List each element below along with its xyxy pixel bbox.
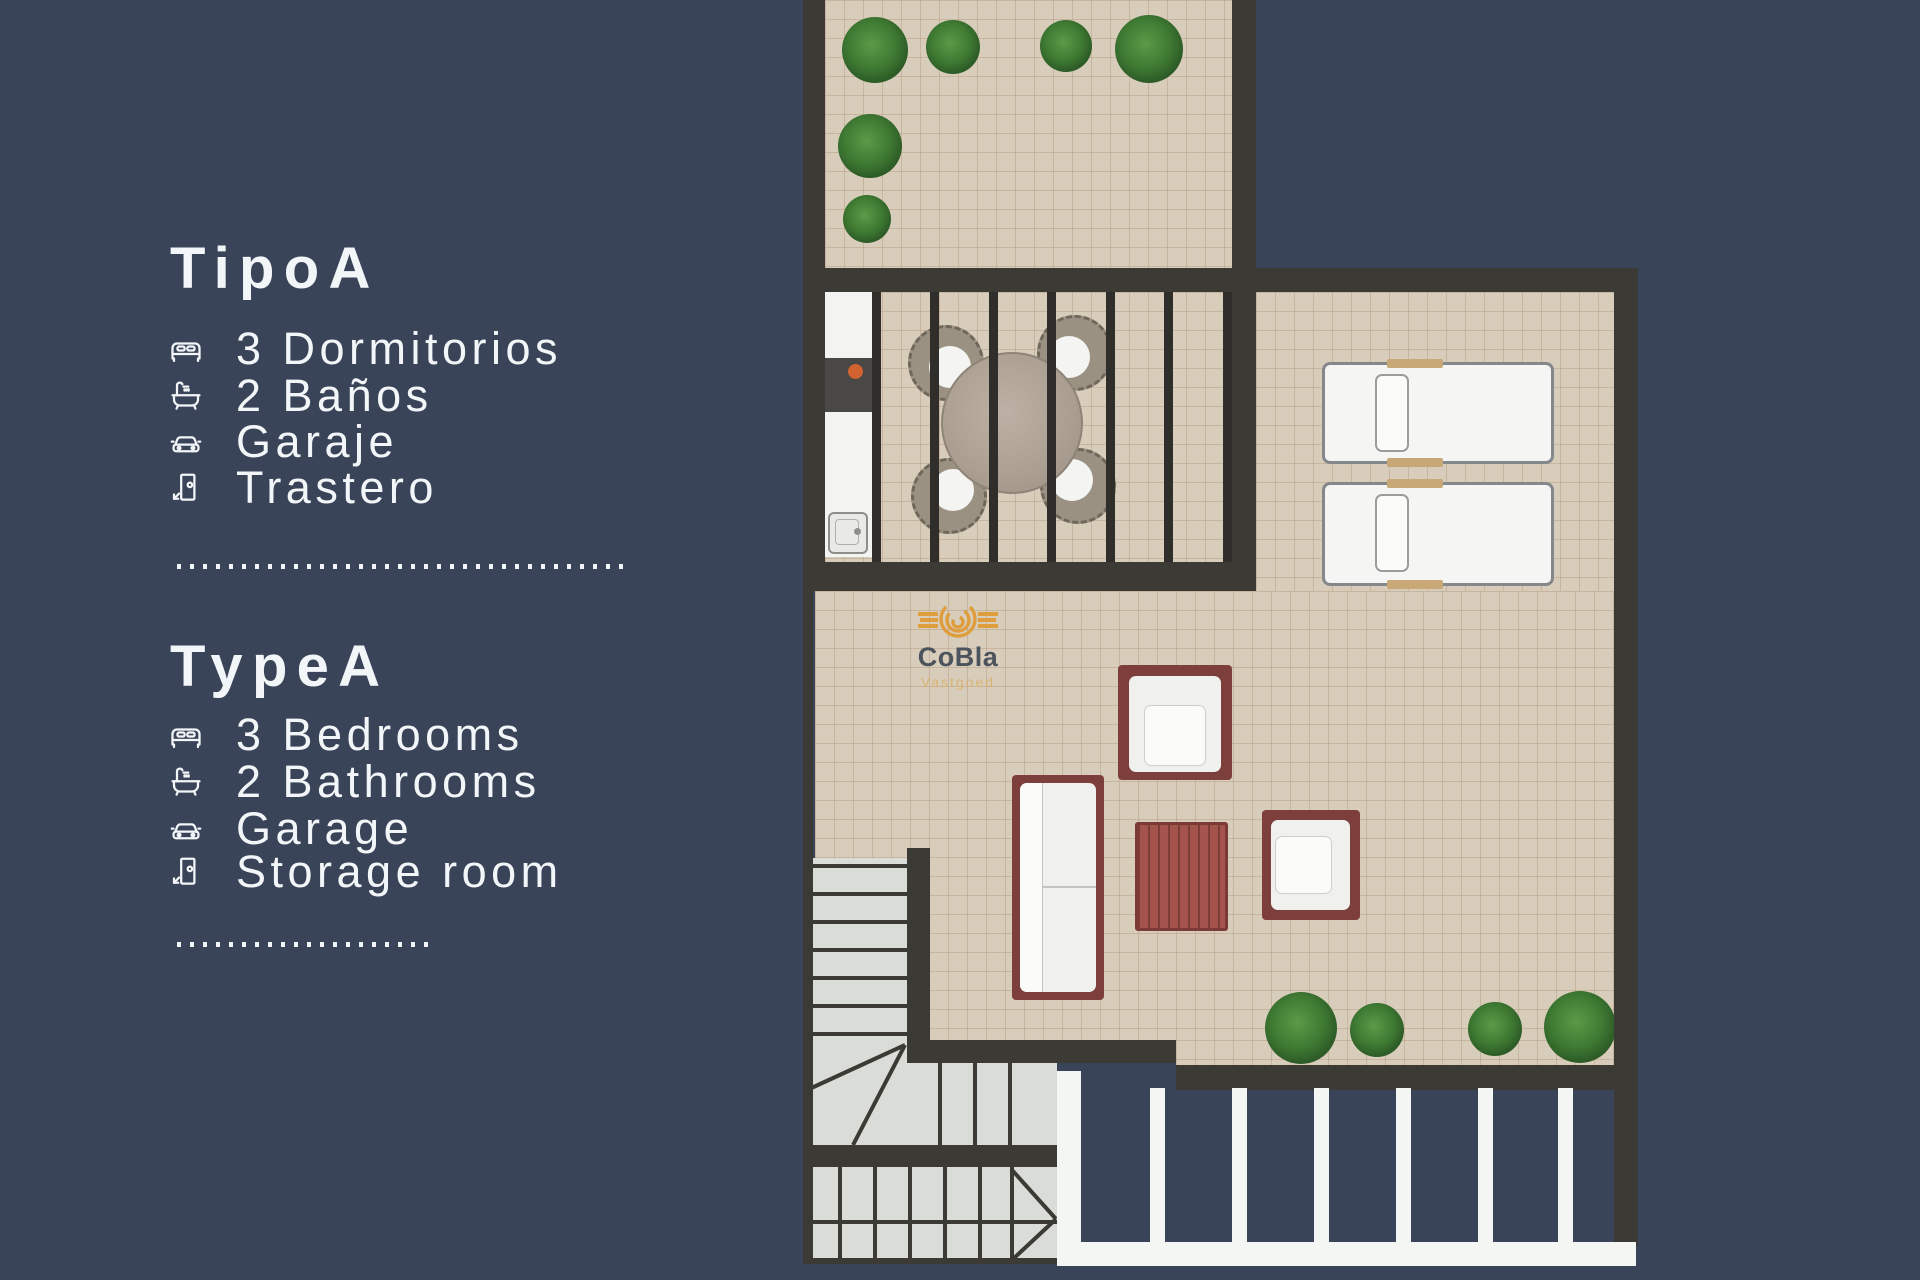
tipo-item-label: 2 Baños <box>236 373 433 418</box>
bathtub-icon <box>168 377 204 413</box>
wall <box>1614 268 1638 1246</box>
wall <box>1176 1065 1638 1090</box>
kitchen-sink <box>828 512 868 554</box>
sun-lounger <box>1322 362 1554 464</box>
wall <box>803 562 1256 591</box>
wall <box>907 848 930 1063</box>
type-item-garage: Garage <box>168 805 413 851</box>
tipo-item-garaje: Garaje <box>168 418 398 464</box>
staircase-treads <box>803 858 1063 1268</box>
armchair <box>1262 810 1360 920</box>
type-item-label: 2 Bathrooms <box>236 759 541 804</box>
type-item-label: Storage room <box>236 849 563 894</box>
sun-lounger <box>1322 482 1554 586</box>
type-item-bathrooms: 2 Bathrooms <box>168 758 541 804</box>
pergola-slat <box>1314 1088 1329 1244</box>
burner-dot <box>848 364 863 379</box>
dining-table <box>941 352 1083 494</box>
bush <box>926 20 980 74</box>
door-icon <box>168 853 204 889</box>
roof-slat <box>1047 292 1056 562</box>
type-item-label: Garage <box>236 806 413 851</box>
bed-icon <box>168 716 204 752</box>
bush <box>1350 1003 1404 1057</box>
dotted-divider <box>177 564 632 569</box>
sink-faucet <box>854 528 861 535</box>
roof-slat <box>872 292 881 562</box>
pergola-slat <box>1150 1088 1165 1244</box>
cobla-logo-icon <box>912 596 1004 638</box>
roof-slat <box>1223 292 1232 562</box>
pergola-slat <box>1558 1088 1573 1244</box>
roof-slat <box>1106 292 1115 562</box>
roof-slat <box>989 292 998 562</box>
bush <box>1265 992 1337 1064</box>
pergola-slat <box>1232 1088 1247 1244</box>
pergola-slat <box>1478 1088 1493 1244</box>
bush <box>1468 1002 1522 1056</box>
watermark-brand: CoBla <box>880 643 1036 673</box>
tipo-heading: TipoA <box>170 240 380 298</box>
wall <box>803 268 1638 292</box>
armchair <box>1118 665 1232 780</box>
tipo-item-label: Garaje <box>236 419 398 464</box>
coffee-table <box>1135 822 1228 931</box>
bush <box>1115 15 1183 83</box>
type-item-label: 3 Bedrooms <box>236 712 524 757</box>
bush <box>1040 20 1092 72</box>
type-heading: TypeA <box>170 638 389 696</box>
wall <box>803 0 825 591</box>
roof-slat <box>1164 292 1173 562</box>
type-item-bedrooms: 3 Bedrooms <box>168 711 524 757</box>
wall <box>930 1040 1176 1063</box>
bush <box>1544 991 1616 1063</box>
roof-slat <box>930 292 939 562</box>
watermark-subtitle: Vastgoed <box>880 674 1036 690</box>
watermark-logo: CoBla Vastgoed <box>880 596 1036 690</box>
bush <box>838 114 902 178</box>
brochure-page: TipoA 3 Dormitorios 2 Baños <box>0 0 1920 1280</box>
dotted-divider <box>177 942 435 947</box>
tipo-item-label: Trastero <box>236 465 438 510</box>
bush <box>842 17 908 83</box>
door-icon <box>168 469 204 505</box>
pergola-beam <box>1057 1071 1081 1266</box>
tipo-item-banos: 2 Baños <box>168 372 433 418</box>
bathtub-icon <box>168 763 204 799</box>
car-icon <box>168 423 204 459</box>
tipo-item-label: 3 Dormitorios <box>236 326 562 371</box>
type-item-storage: Storage room <box>168 848 563 894</box>
bed-icon <box>168 330 204 366</box>
tipo-item-dormitorios: 3 Dormitorios <box>168 325 562 371</box>
pergola-beam <box>1057 1242 1636 1266</box>
pergola-slat <box>1396 1088 1411 1244</box>
wall <box>803 1145 1075 1167</box>
wall <box>1232 0 1256 591</box>
car-icon <box>168 810 204 846</box>
bush <box>843 195 891 243</box>
tipo-item-trastero: Trastero <box>168 464 438 510</box>
